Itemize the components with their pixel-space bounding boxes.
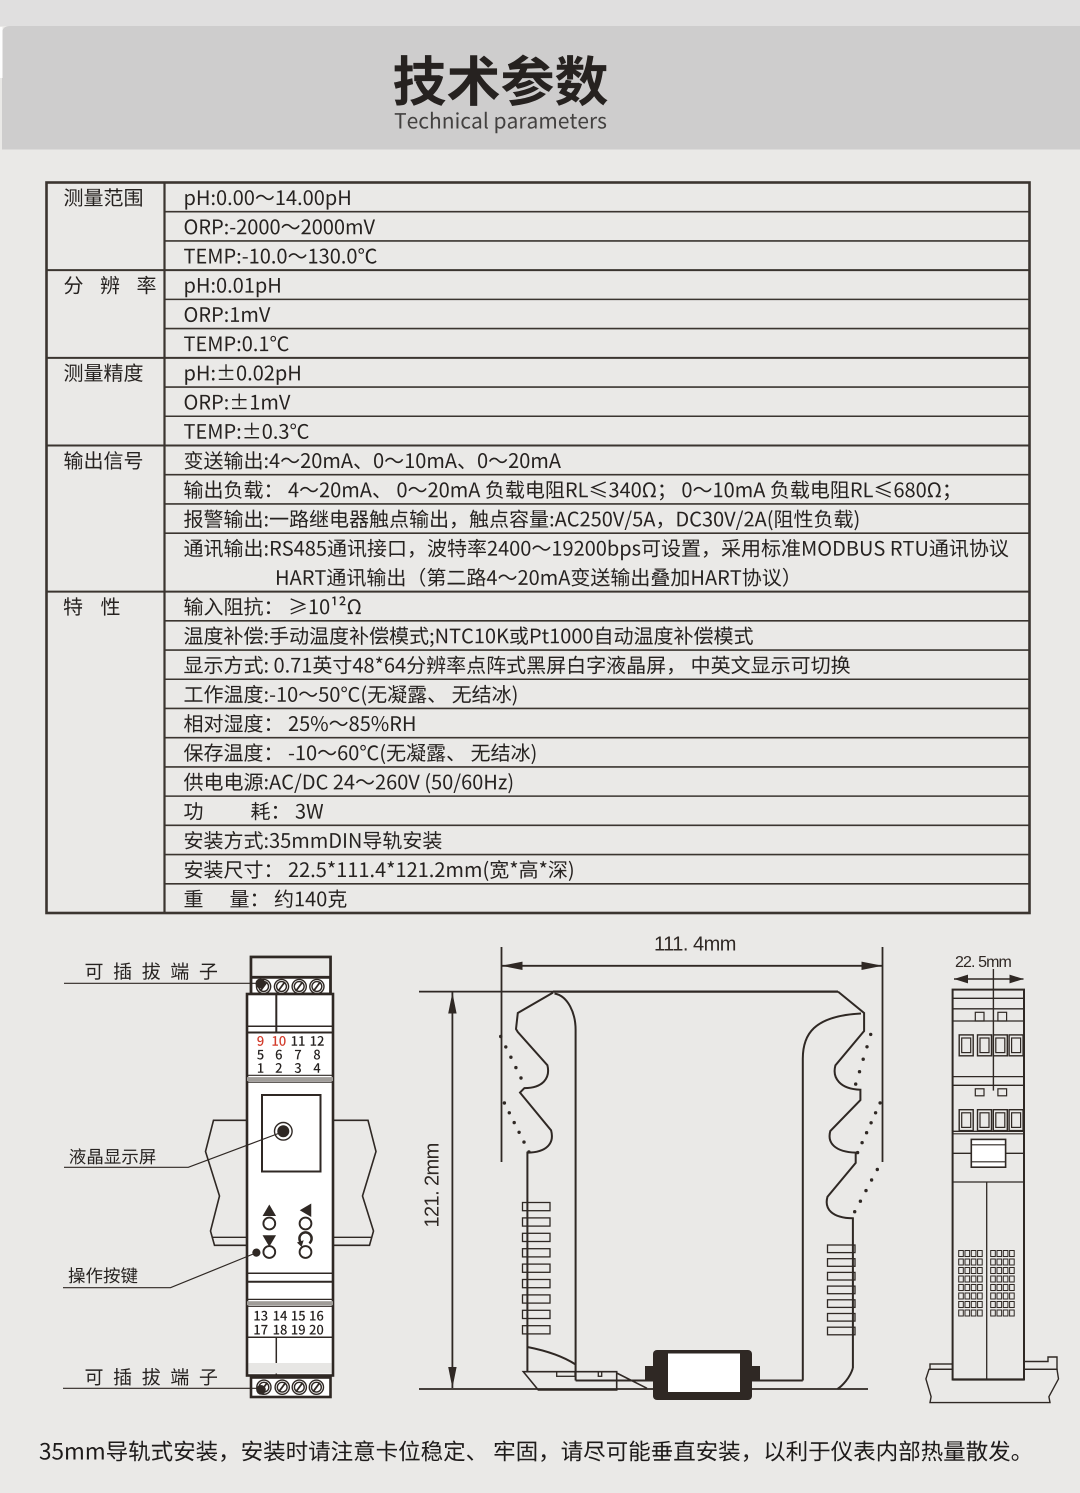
svg-text:121. 2mm: 121. 2mm — [422, 1143, 444, 1227]
svg-text:111. 4mm: 111. 4mm — [654, 934, 736, 956]
svg-text:22. 5mm: 22. 5mm — [955, 954, 1012, 971]
